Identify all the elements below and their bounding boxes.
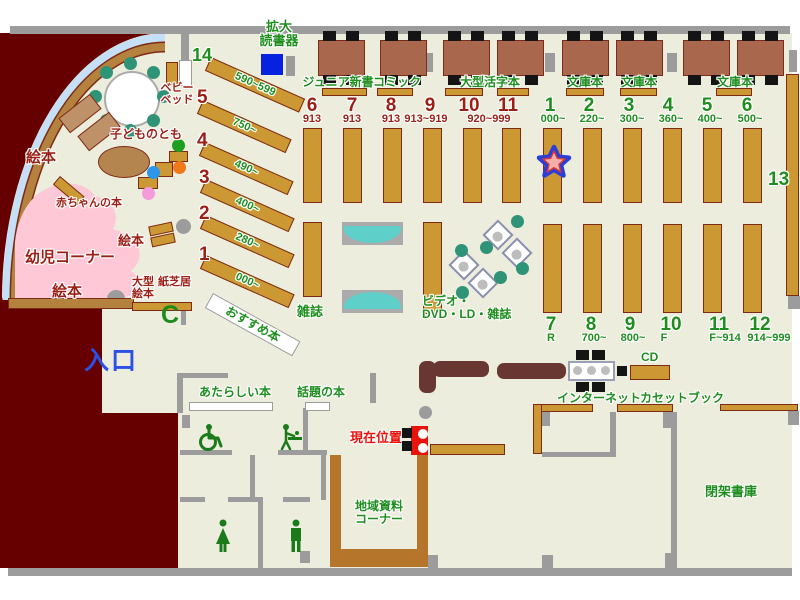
chair — [456, 286, 469, 299]
wall-stack-room — [671, 412, 677, 568]
stack-range: 300~ — [610, 114, 654, 126]
label-video: ビデオ・DVD・LD・雑誌 — [422, 295, 511, 320]
seat — [587, 366, 596, 375]
new-books-shelf — [189, 402, 273, 411]
stack-column — [703, 224, 722, 313]
marker-square — [402, 441, 412, 451]
label-yoji-corner: 幼児コーナー — [25, 250, 115, 266]
stack-number-13: 13 — [768, 170, 789, 190]
stool-pink — [142, 187, 155, 200]
stack-range: 500~ — [728, 114, 772, 126]
chair — [516, 262, 529, 275]
shelf-number: 4 — [197, 131, 208, 151]
marker-square — [402, 428, 412, 438]
label-zasshi: 雑誌 — [297, 305, 323, 319]
chair — [502, 31, 515, 41]
label-new-books: あたらしい本 — [195, 386, 275, 399]
wall-toilet — [283, 497, 310, 502]
seat — [601, 366, 610, 375]
stack-column — [383, 128, 402, 203]
kids-oval-table — [98, 146, 150, 178]
service-counter — [433, 361, 489, 377]
current-position-label: 現在位置 — [350, 431, 402, 445]
label-bunko: 文庫本 — [617, 76, 661, 89]
shelf-bar — [430, 444, 505, 455]
stack-column — [623, 224, 642, 313]
seat — [573, 366, 582, 375]
label-bunko: 文庫本 — [563, 76, 607, 89]
label-closed-stacks: 閉架書庫 — [705, 485, 757, 499]
chair — [448, 31, 461, 41]
pillar — [542, 555, 553, 568]
exterior-wall-bottomleft — [102, 413, 178, 568]
exterior-wall-left — [0, 298, 102, 568]
chair — [494, 271, 507, 284]
label-baby-bed: ベビーベッド — [158, 83, 196, 106]
wall-toilet — [250, 455, 255, 497]
chair — [576, 350, 589, 360]
stack-range: 913 — [292, 114, 332, 126]
pillar — [667, 53, 677, 72]
stack-column — [502, 128, 521, 203]
shelf-number: 1 — [199, 245, 210, 265]
wall-internet-room — [542, 452, 616, 457]
pillar — [788, 296, 800, 309]
label-comic: コミック — [371, 76, 423, 89]
wall-children-divider — [181, 33, 189, 63]
stack-column — [423, 128, 442, 203]
label-internet: インターネット — [557, 392, 627, 405]
stack-range: F — [649, 333, 679, 345]
shelf-bar — [533, 404, 542, 454]
chair — [480, 241, 493, 254]
pillar — [182, 415, 190, 428]
shelf-number: 5 — [197, 88, 208, 108]
label-kamishibai: 紙芝居 — [158, 277, 191, 289]
stack-column — [663, 224, 682, 313]
marker-dot — [418, 429, 428, 439]
shelf-bar — [322, 88, 367, 96]
wall-toilet — [258, 497, 263, 568]
wall-toilet — [321, 450, 326, 500]
stack-column — [583, 224, 602, 313]
wall-segment — [370, 373, 376, 403]
stack-range: 700~ — [572, 333, 616, 345]
stack-range: 914~999 — [737, 333, 800, 345]
label-ehon: 絵本 — [26, 150, 56, 166]
wall-internet-room — [610, 412, 616, 457]
label-bunko: 文庫本 — [713, 76, 757, 89]
stack-range: 920~999 — [457, 114, 521, 126]
star-marker-icon — [536, 144, 572, 178]
women-toilet-icon — [213, 519, 233, 552]
stack-range: 400~ — [688, 114, 732, 126]
pillar — [663, 412, 673, 428]
label-cassette: カセットブック — [640, 392, 714, 405]
chair — [147, 114, 160, 127]
stack-column — [543, 224, 562, 313]
chair — [688, 31, 701, 41]
stool-blue — [147, 166, 160, 179]
marker-dot — [418, 443, 428, 453]
stack-range: 220~ — [570, 114, 614, 126]
reading-table — [737, 40, 784, 76]
stack-column — [343, 128, 362, 203]
stool-orange — [173, 161, 186, 174]
wall-toilet — [180, 497, 205, 502]
stack-column — [663, 128, 682, 203]
pillar — [788, 411, 799, 425]
shelf-bar — [617, 404, 673, 412]
label-magnifier: 拡大読書器 — [252, 20, 306, 47]
reading-table — [562, 40, 609, 76]
stack-column — [303, 222, 322, 297]
pillar — [545, 53, 555, 72]
pillar — [300, 551, 310, 563]
reading-table — [497, 40, 544, 76]
service-counter — [497, 363, 566, 379]
shelf-number: 2 — [199, 204, 210, 224]
stack-range: 913~919 — [396, 114, 456, 126]
shelf-number: 3 — [199, 168, 210, 188]
chair — [455, 244, 468, 257]
label-topic-books: 話題の本 — [294, 386, 348, 399]
chair — [742, 31, 755, 41]
chair — [621, 31, 634, 41]
reading-table — [616, 40, 663, 76]
reading-table — [443, 40, 490, 76]
pillar-round — [176, 219, 191, 234]
service-counter — [419, 361, 436, 393]
wheelchair-icon — [196, 422, 224, 452]
wall-bottom — [8, 568, 792, 576]
chair — [617, 366, 627, 376]
reading-table — [683, 40, 730, 76]
phone-icon: C — [161, 303, 179, 328]
wall-top — [10, 26, 790, 34]
wall-corridor — [177, 373, 183, 413]
chair — [567, 31, 580, 41]
wall-stub — [181, 311, 186, 325]
stack-range: R — [536, 333, 566, 345]
chair — [147, 66, 160, 79]
pillar — [789, 50, 797, 72]
wall-segment — [183, 373, 228, 378]
label-local-materials: 地域資料コーナー — [349, 500, 409, 525]
chair — [100, 66, 113, 79]
pillar-round — [419, 406, 432, 419]
label-ogata-ehon: 大型絵本 — [129, 277, 157, 300]
stack-column — [303, 128, 322, 203]
cd-shelf — [630, 365, 670, 380]
label-junior-shinsho: ジュニア新書 — [301, 76, 375, 89]
chair — [124, 57, 137, 70]
chair — [511, 215, 524, 228]
label-ehon: 絵本 — [118, 234, 144, 248]
shelf-number: 14 — [192, 46, 212, 65]
chair — [385, 31, 398, 41]
stack-column — [743, 224, 762, 313]
pillar — [428, 555, 438, 568]
pillar — [542, 412, 550, 426]
chair — [323, 31, 336, 41]
entrance-label: 入口 — [84, 341, 138, 377]
men-toilet-icon — [286, 519, 306, 552]
stack-column — [703, 128, 722, 203]
shelf-bar — [533, 404, 593, 412]
stack-column — [583, 128, 602, 203]
stack-range: 000~ — [531, 114, 575, 126]
shelf-bar — [720, 404, 798, 411]
stack-range: 913 — [332, 114, 372, 126]
wall-toilet — [228, 497, 260, 502]
chair-gray — [286, 56, 295, 76]
stack-column — [743, 128, 762, 203]
label-cd: CD — [641, 351, 658, 364]
reading-table — [380, 40, 427, 76]
stack-column — [463, 128, 482, 203]
label-akachan: 赤ちゃんの本 — [56, 198, 122, 210]
label-ehon: 絵本 — [52, 284, 82, 300]
reading-table — [318, 40, 365, 76]
stack-column — [623, 128, 642, 203]
topic-books-shelf — [305, 402, 330, 411]
magnifier-device — [261, 54, 283, 75]
library-floor-map: 590~599 750~ 490~ 400~ 280~ 000~ 14 5 4 … — [0, 0, 800, 600]
label-kodomo-no-tomo: 子どものとも — [110, 128, 182, 141]
label-large-print: 大型活字本 — [454, 76, 526, 89]
baby-care-icon — [279, 423, 305, 451]
stack-range: 360~ — [649, 114, 693, 126]
